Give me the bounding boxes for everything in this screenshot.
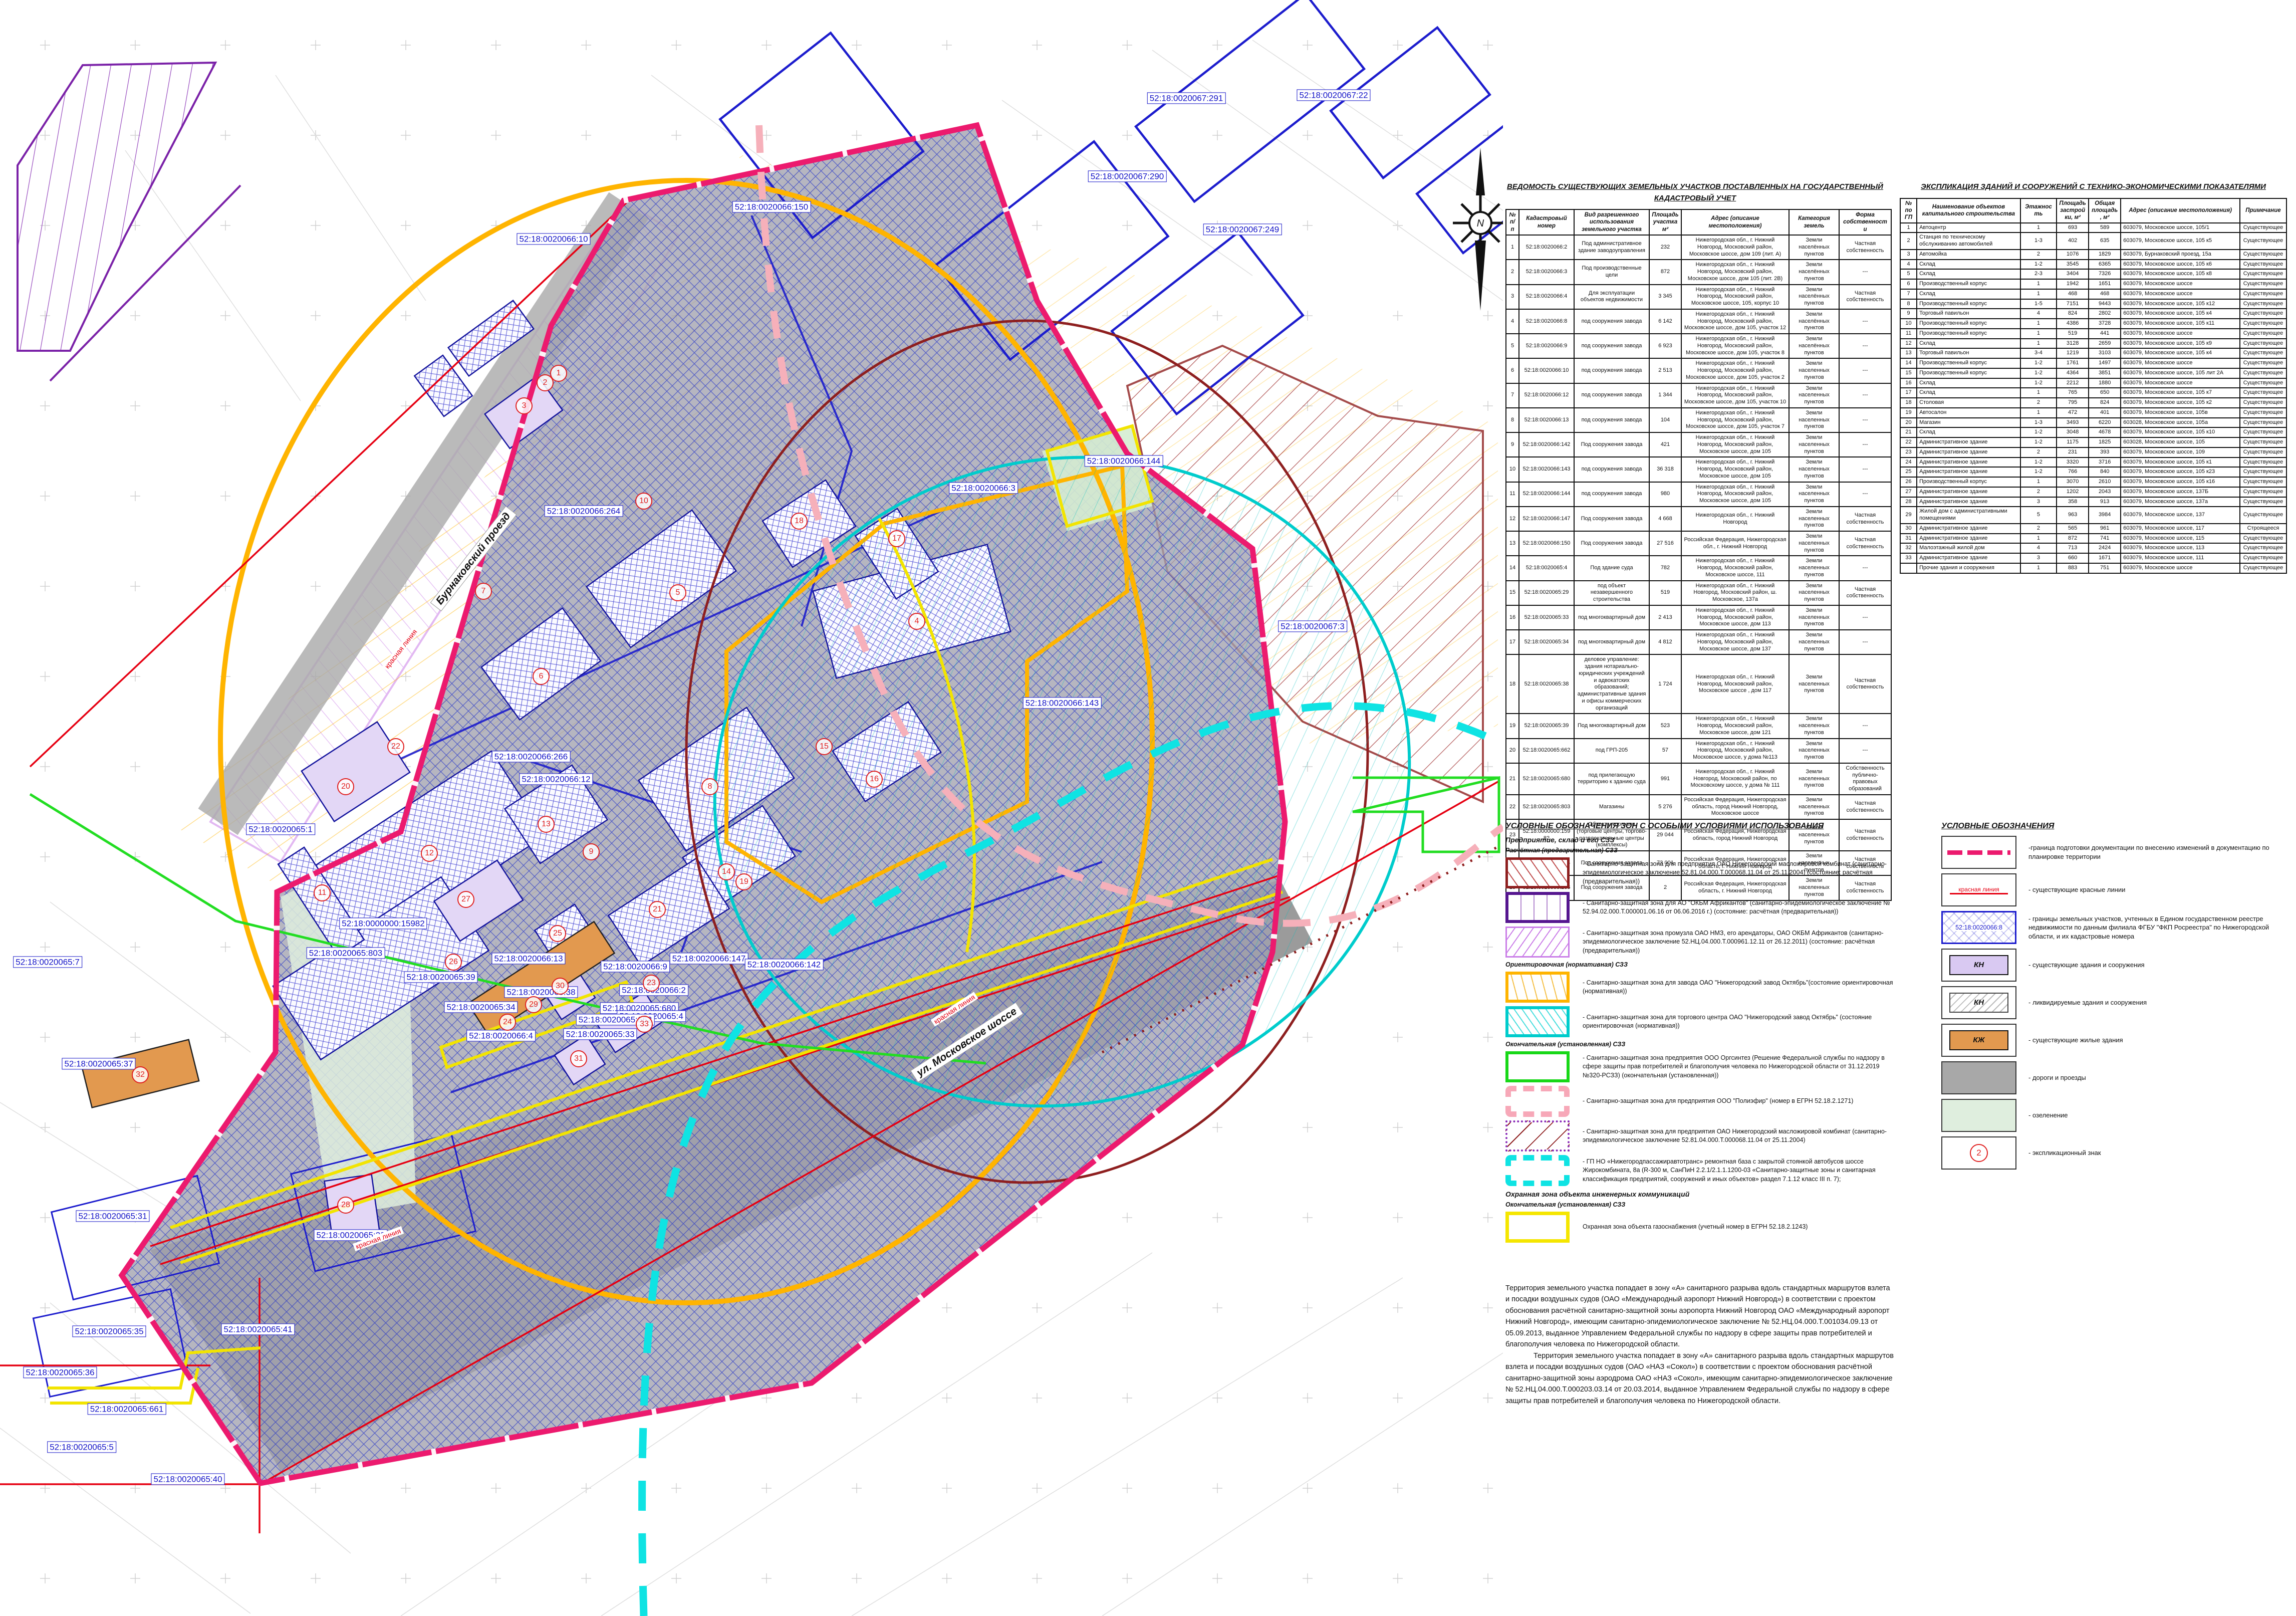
table-cell: 5 276 <box>1649 795 1681 819</box>
table-cell: 603079, Московское шоссе <box>2121 289 2240 299</box>
table-cell: под многоквартирный дом <box>1574 605 1649 630</box>
cadastral-number-label: 52:18:0020066:4 <box>466 1030 536 1041</box>
table-cell: 603079, Московское шоссе, 105 к7 <box>2121 388 2240 398</box>
table-cell: 603079, Московское шоссе, 105 к11 <box>2121 319 2240 329</box>
table-cell: 565 <box>2057 524 2089 534</box>
legend-item: КЖ- существующие жилые здания <box>1941 1024 2287 1057</box>
legend-item-text: - экспликационный знак <box>2028 1148 2101 1158</box>
table-cell: 961 <box>2089 524 2121 534</box>
legend-item: - Санитарно-защитная зона для торгового … <box>1505 1006 1894 1037</box>
table-cell: 589 <box>2089 223 2121 233</box>
table-cell: 104 <box>1649 408 1681 432</box>
table-cell: --- <box>1839 482 1891 507</box>
table-cell: 1 344 <box>1649 383 1681 408</box>
table-cell: под сооружения завода <box>1574 358 1649 383</box>
legend-item: КН- ликвидируемые здания и сооружения <box>1941 986 2287 1019</box>
table-cell: 52:18:0020065:34 <box>1519 630 1574 654</box>
table-row: 1152:18:0020066:144под сооружения завода… <box>1506 482 1891 507</box>
table-row: 19Автосалон1472401603079, Московское шос… <box>1900 408 2286 418</box>
table-cell: --- <box>1839 457 1891 482</box>
table-row: 27Административное здание212022043603079… <box>1900 487 2286 497</box>
table-cell: 13 <box>1900 348 1917 358</box>
table-cell: 19 <box>1506 714 1519 738</box>
table-cell: Существующее <box>2240 418 2286 428</box>
table-cell: под сооружения завода <box>1574 309 1649 334</box>
explication-marker: 29 <box>525 996 542 1013</box>
table-cell: 3 345 <box>1649 285 1681 309</box>
table-cell: Существующее <box>2240 563 2286 573</box>
table-cell: 27 516 <box>1649 531 1681 556</box>
table-cell: Земли населенных пунктов <box>1789 383 1839 408</box>
table-cell: 3 <box>1506 285 1519 309</box>
explication-marker: 30 <box>552 978 569 995</box>
table-cell: Существующее <box>2240 467 2286 477</box>
table-cell: Существующее <box>2240 543 2286 553</box>
table-cell: 3 <box>2020 553 2057 563</box>
table-cell: 13 <box>1506 531 1519 556</box>
table-cell: 603079, Московское шоссе, 105/1 <box>2121 223 2240 233</box>
table-cell: под объект незавершенного строительства <box>1574 581 1649 605</box>
table-cell: 1202 <box>2057 487 2089 497</box>
explication-marker: 32 <box>132 1066 149 1083</box>
table-cell: Существующее <box>2240 388 2286 398</box>
table-cell: Земли населенных пунктов <box>1789 556 1839 580</box>
table-cell: Нижегородская обл., г. Нижний Новгород, … <box>1681 408 1789 432</box>
table-cell: 5 <box>1900 269 1917 279</box>
table-row: 2052:18:0020065:662под ГРП-20557Нижегоро… <box>1506 739 1891 763</box>
cadastral-number-label: 52:18:0020065:661 <box>88 1403 166 1415</box>
kn-symbol: КН <box>1941 949 2016 982</box>
table-cell: 52:18:0020065:38 <box>1519 654 1574 714</box>
table-cell: Производственный корпус <box>1917 358 2020 368</box>
legend-item-text: - озеленение <box>2028 1111 2068 1120</box>
cadastral-number-label: 52:18:0020067:22 <box>1297 89 1370 101</box>
table-row: 1452:18:0020065:4Под здание суда782Нижег… <box>1506 556 1891 580</box>
symbol-glyph: 2 <box>1970 1144 1988 1162</box>
table-cell: 1-2 <box>2020 368 2057 378</box>
cadastral-number-label: 52:18:0020066:12 <box>519 773 593 785</box>
table-cell: 52:18:0020065:662 <box>1519 739 1574 763</box>
parcel-number-label: 52:18:0020066:8 <box>1954 924 2003 931</box>
legend-item-text: - Санитарно-защитная зона для торгового … <box>1583 1013 1894 1031</box>
legend-item-text: - ГП НО «Нижегородпассажиравтотранс» рем… <box>1583 1158 1894 1184</box>
table-cell: Склад <box>1917 269 2020 279</box>
legend-item: - дороги и проезды <box>1941 1061 2287 1094</box>
explication-marker: 16 <box>866 771 883 788</box>
table-cell: 741 <box>2089 534 2121 544</box>
table-cell: 1 724 <box>1649 654 1681 714</box>
expl-symbol: 2 <box>1941 1136 2016 1170</box>
table-cell: 2-3 <box>2020 269 2057 279</box>
table-cell: 52:18:0020065:680 <box>1519 763 1574 795</box>
cadastral-number-label: 52:18:0020066:143 <box>1023 697 1102 709</box>
table-cell: Земли населенных пунктов <box>1789 795 1839 819</box>
table-cell: Собственность публично-правовых образова… <box>1839 763 1891 795</box>
table-cell: 52:18:0020066:2 <box>1519 235 1574 260</box>
table-cell: 603079, Московское шоссе <box>2121 279 2240 289</box>
cadastral-number-label: 52:18:0020066:266 <box>492 751 571 762</box>
table-cell: 2610 <box>2089 477 2121 487</box>
explication-marker: 7 <box>475 583 492 600</box>
table-cell: 3-4 <box>2020 348 2057 358</box>
table-cell: 26 <box>1900 477 1917 487</box>
table-cell: 603079, Московское шоссе, 109 <box>2121 447 2240 457</box>
legend-item-text: - Санитарно-защитная зона для предприяти… <box>1583 1127 1894 1145</box>
legend-item: красная линия- существующие красные лини… <box>1941 873 2287 906</box>
table-row: 1652:18:0020065:33под многоквартирный до… <box>1506 605 1891 630</box>
cadastral-number-label: 52:18:0020066:9 <box>601 961 670 972</box>
cyan-diag-swatch <box>1505 1006 1570 1037</box>
table-cell: 3728 <box>2089 319 2121 329</box>
table-cell: 1-5 <box>2020 299 2057 309</box>
table-row: 3Автомойка210761829603079, Бурнаковский … <box>1900 250 2286 260</box>
table-cell: Административное здание <box>1917 467 2020 477</box>
green-symbol <box>1941 1099 2016 1132</box>
cadastral-number-label: 52:18:0020067:249 <box>1203 223 1282 235</box>
explication-marker: 12 <box>421 845 438 862</box>
cadastral-number-label: 52:18:0000000:15982 <box>339 917 427 929</box>
table-cell: 603079, Московское шоссе <box>2121 378 2240 388</box>
table-cell: 1 <box>2020 388 2057 398</box>
table-cell: Склад <box>1917 289 2020 299</box>
table-cell: 603028, Московское шоссе, 105 <box>2121 437 2240 447</box>
table-cell: Земли населённых пунктов <box>1789 334 1839 358</box>
table-cell: 29 <box>1900 507 1917 524</box>
table-cell: 872 <box>1649 260 1681 284</box>
table-cell: Под производственные цели <box>1574 260 1649 284</box>
table-cell: 6 142 <box>1649 309 1681 334</box>
table-cell: 402 <box>2057 233 2089 250</box>
table-cell: Существующее <box>2240 497 2286 507</box>
table-row: 9Торговый павильон48242802603079, Москов… <box>1900 309 2286 319</box>
table-cell: 10 <box>1900 319 1917 329</box>
cadastral-map: N 52:18:0020067:29152:18:0020067:2252:18… <box>0 0 1503 1616</box>
table-cell: 1 <box>2020 279 2057 289</box>
table-cell: 52:18:0020066:13 <box>1519 408 1574 432</box>
table-cell: Склад <box>1917 427 2020 437</box>
table-cell: 17 <box>1506 630 1519 654</box>
table-cell: 21 <box>1900 427 1917 437</box>
table-cell: Склад <box>1917 260 2020 270</box>
table-cell: 1 <box>2020 534 2057 544</box>
table-cell: 4364 <box>2057 368 2089 378</box>
table-row: 31Административное здание1872741603079, … <box>1900 534 2286 544</box>
legend-item-text: -граница подготовки документации по внес… <box>2028 843 2287 861</box>
table-row: 6Производственный корпус119421651603079,… <box>1900 279 2286 289</box>
table-cell: 824 <box>2089 398 2121 408</box>
table-cell: Существующее <box>2240 250 2286 260</box>
table-row: 1852:18:0020065:38деловое управление: зд… <box>1506 654 1891 714</box>
table-cell: 2 <box>2020 447 2057 457</box>
table-cell: 2 <box>2020 524 2057 534</box>
table-cell: 30 <box>1900 524 1917 534</box>
table-cell: 883 <box>2057 563 2089 573</box>
table-row: 20Магазин1-334936220603028, Московское ш… <box>1900 418 2286 428</box>
table-cell: 1761 <box>2057 358 2089 368</box>
table-cell: Производственный корпус <box>1917 319 2020 329</box>
table-cell: 17 <box>1900 388 1917 398</box>
cadastral-number-label: 52:18:0020065:34 <box>444 1001 518 1013</box>
table-cell: 5 <box>2020 507 2057 524</box>
cadastral-number-label: 52:18:0020065:39 <box>404 971 477 983</box>
table-row: 852:18:0020066:13под сооружения завода10… <box>1506 408 1891 432</box>
explication-marker: 27 <box>457 891 474 908</box>
table-cell: 52:18:0020066:150 <box>1519 531 1574 556</box>
table-cell: Существующее <box>2240 289 2286 299</box>
table-cell: 9443 <box>2089 299 2121 309</box>
table-cell: Земли населенных пунктов <box>1789 432 1839 457</box>
table-cell: Магазины <box>1574 795 1649 819</box>
legend-item-text: - существующие красные линии <box>2028 885 2125 894</box>
table-row: 1Автоцентр1693589603079, Московское шосс… <box>1900 223 2286 233</box>
table-cell: 468 <box>2089 289 2121 299</box>
table-cell: Нижегородская обл., г. Нижний Новгород, … <box>1681 309 1789 334</box>
explication-marker: 31 <box>570 1050 587 1067</box>
legend-item-text: - дороги и проезды <box>2028 1073 2086 1082</box>
table-cell: 603079, Московское шоссе, 105 к1 <box>2121 457 2240 468</box>
table-cell: под ГРП-205 <box>1574 739 1649 763</box>
knl-symbol: КН <box>1941 986 2016 1019</box>
table-cell: 52:18:0020066:4 <box>1519 285 1574 309</box>
table-cell: Под многоквартирный дом <box>1574 714 1649 738</box>
table-row: 5Склад2-334047326603079, Московское шосс… <box>1900 269 2286 279</box>
table-row: 1552:18:0020065:29под объект незавершенн… <box>1506 581 1891 605</box>
explication-marker: 4 <box>908 613 925 630</box>
legend-zones-subtitle: Предприятие, склад и его СЗЗ <box>1505 836 1894 844</box>
table-cell: 603079, Московское шоссе, 105 к2 <box>2121 398 2240 408</box>
table-cell: 11 <box>1900 329 1917 339</box>
dot-maroon-swatch <box>1505 1120 1570 1151</box>
legend-item: Охранная зона объекта газоснабжения (уче… <box>1505 1212 1894 1243</box>
table-cell: 603079, Московское шоссе, 105 к6 <box>2121 260 2240 270</box>
plan-sheet: { "tables": { "parcels": { "title": "ВЕД… <box>0 0 2296 1616</box>
building-swatch-label: КН <box>1949 955 2008 975</box>
table-cell: Нижегородская обл., г. Нижний Новгород, … <box>1681 630 1789 654</box>
table-cell: под многоквартирный дом <box>1574 630 1649 654</box>
table-cell: Существующее <box>2240 329 2286 339</box>
table-cell: 1 <box>2020 339 2057 349</box>
table-row: 25Административное здание1-2766840603079… <box>1900 467 2286 477</box>
table-cell: 991 <box>1649 763 1681 795</box>
table-cell: 603079, Московское шоссе, 115 <box>2121 534 2240 544</box>
table-row: 4Склад1-235456365603079, Московское шосс… <box>1900 260 2286 270</box>
table-row: 152:18:0020066:2Под административное зда… <box>1506 235 1891 260</box>
table-cell: 603079, Бурнаковский проезд, 15а <box>2121 250 2240 260</box>
table-cell: Земли населённых пунктов <box>1789 309 1839 334</box>
table-cell: Нижегородская обл., г. Нижний Новгород, … <box>1681 457 1789 482</box>
table-cell: 8 <box>1506 408 1519 432</box>
table-row: 352:18:0020066:4Для эксплуатации объекто… <box>1506 285 1891 309</box>
table-cell: 28 <box>1900 497 1917 507</box>
legend-item: - Санитарно-защитная зона для предприяти… <box>1505 1120 1894 1151</box>
table-row: 15Производственный корпус1-2436438516030… <box>1900 368 2286 378</box>
table-cell: Частная собственность <box>1839 235 1891 260</box>
table-cell: 603079, Московское шоссе, 105 к9 <box>2121 339 2240 349</box>
cadastral-number-label: 52:18:0020066:150 <box>732 201 811 212</box>
table-cell: 421 <box>1649 432 1681 457</box>
table-cell: Склад <box>1917 378 2020 388</box>
legend-section-label: Ориентировочная (нормативная) СЗЗ <box>1505 961 1894 968</box>
table-cell: 603079, Московское шоссе, 137а <box>2121 497 2240 507</box>
table-cell: 52:18:0020066:8 <box>1519 309 1574 334</box>
legend-item-text: - Санитарно-защитная зона для АО "ОКБМ А… <box>1583 899 1894 916</box>
table-row: 23Административное здание2231393603079, … <box>1900 447 2286 457</box>
legend-item-text: - Санитарно-защитная зона предприятия ОО… <box>1583 1054 1894 1080</box>
table-cell: 1829 <box>2089 250 2121 260</box>
table-cell: Жилой дом с административными помещениям… <box>1917 507 2020 524</box>
table-cell: 1-2 <box>2020 260 2057 270</box>
table-cell: Существующее <box>2240 348 2286 358</box>
table-row: 32Малоэтажный жилой дом47132424603079, М… <box>1900 543 2286 553</box>
table-row: 752:18:0020066:12под сооружения завода1 … <box>1506 383 1891 408</box>
table-row: Прочие здания и сооружения1883751603079,… <box>1900 563 2286 573</box>
table-cell: 10 <box>1506 457 1519 482</box>
table-cell: 1 <box>2020 223 2057 233</box>
legend-symbols: УСЛОВНЫЕ ОБОЗНАЧЕНИЯ -граница подготовки… <box>1941 822 2287 1174</box>
table-cell: 401 <box>2089 408 2121 418</box>
table-cell: Земли населенных пунктов <box>1789 358 1839 383</box>
column-header: Форма собственности <box>1839 209 1891 235</box>
table-cell: Земли населённых пунктов <box>1789 235 1839 260</box>
table-cell: 872 <box>2057 534 2089 544</box>
table-cell: 1 <box>2020 319 2057 329</box>
table-cell: Земли населённых пунктов <box>1789 285 1839 309</box>
cadastral-number-label: 52:18:0020065:33 <box>563 1028 637 1040</box>
table-cell: 57 <box>1649 739 1681 763</box>
table-cell: 1942 <box>2057 279 2089 289</box>
table-cell: 32 <box>1900 543 1917 553</box>
table-cell: 468 <box>2057 289 2089 299</box>
table-cell: Прочие здания и сооружения <box>1917 563 2020 573</box>
table-cell: 4 <box>2020 543 2057 553</box>
cadastral-number-label: 52:18:0020066:147 <box>670 953 748 964</box>
table-cell: 5 <box>1506 334 1519 358</box>
table-cell: 36 318 <box>1649 457 1681 482</box>
table-cell: 52:18:0020066:142 <box>1519 432 1574 457</box>
table-cell: 751 <box>2089 563 2121 573</box>
table-cell: Существующее <box>2240 477 2286 487</box>
table-cell: Административное здание <box>1917 534 2020 544</box>
table-row: 452:18:0020066:8под сооружения завода6 1… <box>1506 309 1891 334</box>
table-cell: под сооружения завода <box>1574 408 1649 432</box>
legend-item: - Санитарно-защитная зона для предприяти… <box>1505 857 1894 888</box>
table-cell: 1 <box>2020 329 2057 339</box>
legend-item: - Санитарно-защитная зона для предприяти… <box>1505 1086 1894 1117</box>
explication-marker: 20 <box>337 778 354 795</box>
table-cell: Существующее <box>2240 487 2286 497</box>
table-cell: 18 <box>1900 398 1917 408</box>
table-cell: 18 <box>1506 654 1519 714</box>
explication-marker: 2 <box>537 374 554 391</box>
table-cell: Нижегородская обл., г. Нижний Новгород, … <box>1681 739 1789 763</box>
table-cell: 1-2 <box>2020 457 2057 468</box>
table-cell: Земли населенных пунктов <box>1789 457 1839 482</box>
explication-marker: 10 <box>635 493 652 510</box>
table-cell: 782 <box>1649 556 1681 580</box>
table-cell: 52:18:0020065:4 <box>1519 556 1574 580</box>
table-cell: 24 <box>1900 457 1917 468</box>
table-cell: 2659 <box>2089 339 2121 349</box>
table-cell: 6220 <box>2089 418 2121 428</box>
table-cell: 52:18:0020066:147 <box>1519 507 1574 531</box>
table-cell: Земли населённых пунктов <box>1789 260 1839 284</box>
road-symbol <box>1941 1061 2016 1094</box>
notes-block: Территория земельного участка попадает в… <box>1505 1283 1894 1407</box>
table-cell: Автоцентр <box>1917 223 2020 233</box>
table-cell: Земли населенных пунктов <box>1789 531 1839 556</box>
table-cell: Земли населенных пунктов <box>1789 763 1839 795</box>
table-cell: 3 <box>2020 497 2057 507</box>
cadastral-number-label: 52:18:0020065:36 <box>23 1366 97 1378</box>
explication-marker: 26 <box>445 954 462 971</box>
table-cell: 15 <box>1900 368 1917 378</box>
table-cell: Строящееся <box>2240 524 2286 534</box>
legend-item-text: - границы земельных участков, учтенных в… <box>2028 914 2287 941</box>
table-cell: Административное здание <box>1917 524 2020 534</box>
table-cell: 603079, Московское шоссе, 105 к12 <box>2121 299 2240 309</box>
table-cell: Земли населенных пунктов <box>1789 739 1839 763</box>
table-cell: Земли населенных пунктов <box>1789 714 1839 738</box>
table-row: 2152:18:0020065:680под прилегающую терри… <box>1506 763 1891 795</box>
table-cell: Нижегородская обл., г. Нижний Новгород, … <box>1681 581 1789 605</box>
table-cell: 603079, Московское шоссе, 113 <box>2121 543 2240 553</box>
legend-section-label: Охранная зона объекта инженерных коммуни… <box>1505 1190 1894 1198</box>
legend-item: - Санитарно-защитная зона для завода ОАО… <box>1505 972 1894 1003</box>
table-cell: 4 668 <box>1649 507 1681 531</box>
cadastral-number-label: 52:18:0020066:10 <box>517 233 590 245</box>
table-cell: 52:18:0020066:144 <box>1519 482 1574 507</box>
table-cell: Существующее <box>2240 447 2286 457</box>
header-row: № по ГПНаименование объектов капитальног… <box>1900 198 2286 223</box>
table-row: 22Административное здание1-2117518256030… <box>1900 437 2286 447</box>
table-cell: --- <box>1839 334 1891 358</box>
table-cell: Под сооружения завода <box>1574 531 1649 556</box>
table-cell: 3070 <box>2057 477 2089 487</box>
column-header: № п/п <box>1506 209 1519 235</box>
cadastral-number-label: 52:18:0020066:142 <box>745 959 824 970</box>
explication-marker: 17 <box>888 530 905 547</box>
cadastral-number-label: 52:18:0020065:35 <box>72 1325 146 1337</box>
table-cell: 3404 <box>2057 269 2089 279</box>
table-cell: 713 <box>2057 543 2089 553</box>
column-header: Вид разрешенного использования земельног… <box>1574 209 1649 235</box>
table-cell: Частная собственность <box>1839 531 1891 556</box>
cadastral-number-label: 52:18:0020066:13 <box>491 953 565 964</box>
table-cell: 393 <box>2089 447 2121 457</box>
explication-marker: 5 <box>669 584 686 601</box>
table-cell: 4 <box>1900 260 1917 270</box>
table-cell: 766 <box>2057 467 2089 477</box>
table-cell: --- <box>1839 714 1891 738</box>
table-cell: 2 413 <box>1649 605 1681 630</box>
table-row: 2Станция по техническому обслуживанию ав… <box>1900 233 2286 250</box>
table-cell: Существующее <box>2240 534 2286 544</box>
table-cell: 472 <box>2057 408 2089 418</box>
table-cell: 9 <box>1900 309 1917 319</box>
table-cell: под сооружения завода <box>1574 334 1649 358</box>
table-row: 24Административное здание1-2332037166030… <box>1900 457 2286 468</box>
table-cell: 22 <box>1506 795 1519 819</box>
legend-item: -граница подготовки документации по внес… <box>1941 836 2287 869</box>
table-cell: 3048 <box>2057 427 2089 437</box>
table-cell: Земли населенных пунктов <box>1789 630 1839 654</box>
table-cell: 31 <box>1900 534 1917 544</box>
cadastral-number-label: 52:18:0020067:290 <box>1088 170 1167 182</box>
table-cell: 603079, Московское шоссе, 105в <box>2121 408 2240 418</box>
table-cell: 3493 <box>2057 418 2089 428</box>
table-cell: 1 <box>2020 289 2057 299</box>
table-cell: 519 <box>1649 581 1681 605</box>
